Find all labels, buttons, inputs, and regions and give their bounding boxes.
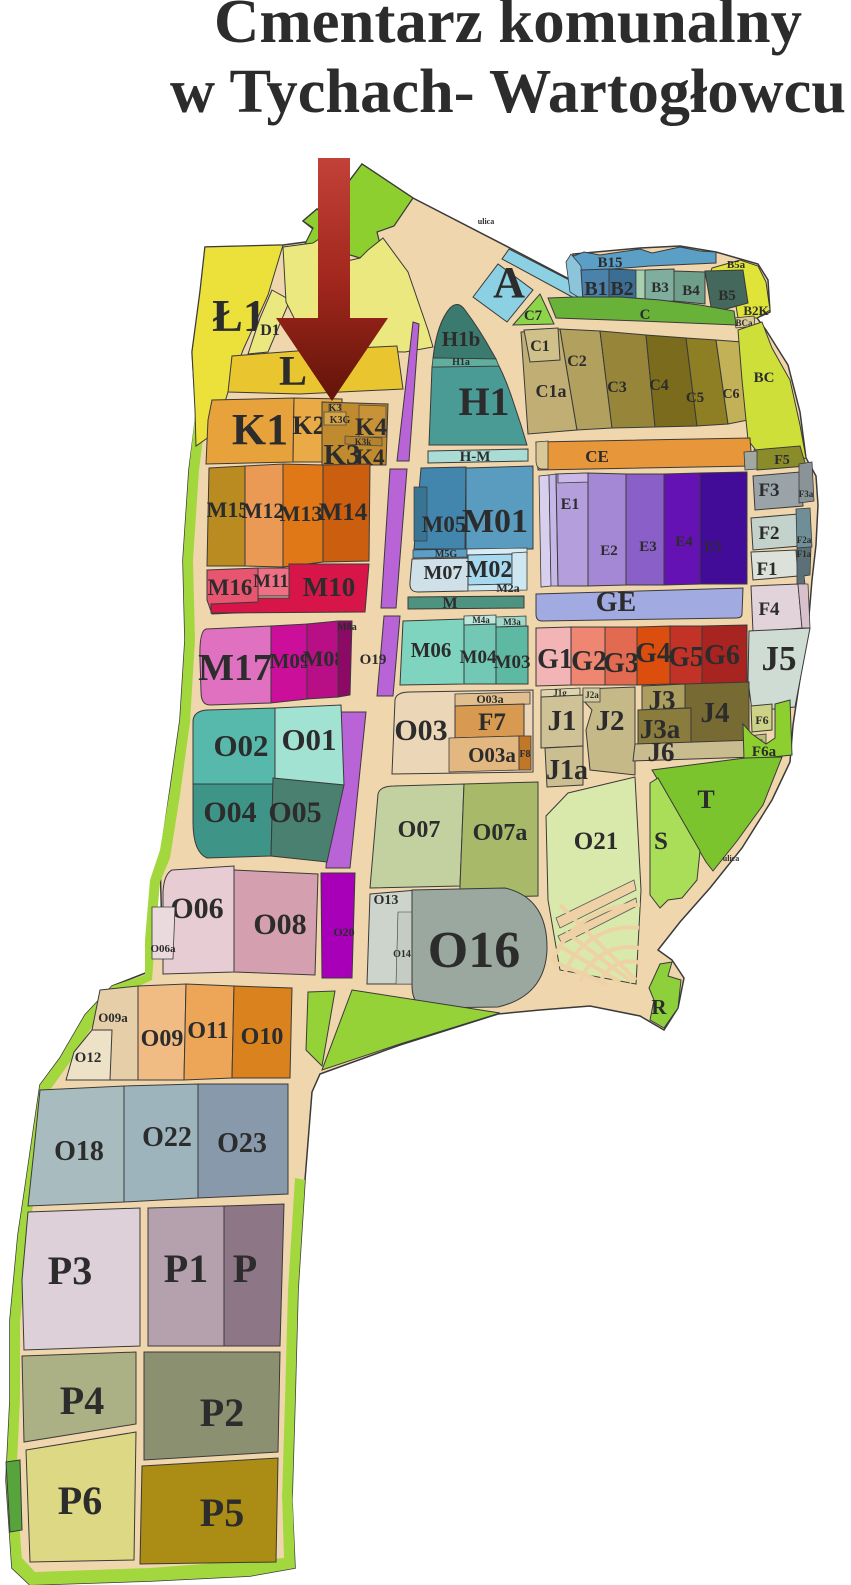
svg-text:O03a: O03a — [468, 743, 516, 767]
svg-text:E5: E5 — [704, 539, 722, 555]
svg-text:O09a: O09a — [98, 1010, 128, 1025]
svg-text:F1a: F1a — [797, 549, 812, 559]
svg-text:C2: C2 — [567, 353, 587, 370]
svg-text:C3: C3 — [607, 379, 627, 396]
svg-text:M2a: M2a — [496, 581, 519, 595]
svg-text:B5a: B5a — [727, 259, 746, 271]
svg-text:M06: M06 — [411, 638, 452, 662]
svg-text:J5: J5 — [762, 639, 797, 678]
svg-text:G6: G6 — [704, 640, 740, 671]
svg-text:M11: M11 — [253, 571, 289, 592]
svg-text:E4: E4 — [675, 534, 693, 550]
svg-text:P2: P2 — [200, 1390, 244, 1435]
svg-text:E1: E1 — [561, 496, 580, 513]
svg-text:ulica: ulica — [478, 217, 494, 226]
svg-text:B5: B5 — [718, 288, 736, 304]
svg-text:O16: O16 — [428, 922, 520, 979]
svg-text:J2: J2 — [596, 705, 625, 737]
svg-text:H1b: H1b — [442, 327, 481, 351]
svg-text:F1: F1 — [756, 559, 777, 580]
svg-text:C1a: C1a — [536, 381, 567, 401]
svg-text:R: R — [651, 995, 667, 1019]
svg-text:M13: M13 — [280, 501, 323, 526]
svg-text:O12: O12 — [75, 1050, 102, 1066]
svg-text:O19: O19 — [360, 652, 387, 668]
svg-text:O10: O10 — [241, 1024, 284, 1050]
svg-text:H1: H1 — [458, 379, 509, 424]
svg-text:w Tychach- Wartogłowcu: w Tychach- Wartogłowcu — [170, 58, 846, 126]
svg-text:C7: C7 — [524, 308, 543, 324]
svg-text:M14: M14 — [319, 499, 368, 526]
svg-text:K2: K2 — [292, 411, 325, 440]
svg-text:K3G: K3G — [330, 415, 351, 426]
svg-text:G4: G4 — [635, 638, 671, 669]
svg-text:C6: C6 — [722, 387, 739, 402]
svg-text:O06: O06 — [170, 892, 223, 925]
svg-text:E2: E2 — [600, 543, 618, 559]
svg-text:O09: O09 — [141, 1026, 184, 1052]
svg-text:O02: O02 — [213, 728, 268, 763]
svg-text:O23: O23 — [217, 1128, 267, 1159]
svg-text:C: C — [640, 307, 651, 323]
svg-text:M07: M07 — [424, 562, 463, 584]
svg-text:O13: O13 — [374, 893, 399, 908]
svg-text:M05: M05 — [422, 512, 467, 537]
svg-text:CE: CE — [585, 447, 609, 466]
svg-text:O01: O01 — [281, 722, 336, 757]
svg-text:P1: P1 — [164, 1246, 208, 1291]
svg-text:O20: O20 — [333, 925, 354, 939]
svg-text:G3: G3 — [603, 648, 639, 679]
svg-text:O22: O22 — [142, 1122, 192, 1153]
svg-text:F5: F5 — [774, 453, 790, 468]
svg-text:O06a: O06a — [150, 943, 176, 955]
svg-text:O03a: O03a — [476, 692, 503, 706]
svg-text:F2a: F2a — [797, 535, 812, 545]
svg-text:O07: O07 — [398, 817, 441, 843]
svg-text:J2a: J2a — [585, 690, 599, 700]
svg-text:BC: BC — [754, 370, 775, 386]
svg-text:K1: K1 — [232, 405, 288, 454]
svg-text:E3: E3 — [639, 539, 657, 555]
svg-text:O04: O04 — [203, 796, 256, 829]
svg-text:M02: M02 — [466, 557, 513, 583]
svg-text:O08: O08 — [253, 908, 306, 941]
svg-text:J1: J1 — [548, 705, 577, 737]
svg-text:M01: M01 — [462, 503, 528, 540]
svg-text:M10: M10 — [303, 572, 355, 602]
svg-text:T: T — [697, 785, 714, 814]
svg-text:P5: P5 — [200, 1490, 244, 1535]
svg-text:F2: F2 — [758, 523, 779, 544]
svg-text:O07a: O07a — [473, 820, 528, 846]
svg-text:O14: O14 — [393, 949, 411, 960]
svg-text:P: P — [233, 1246, 257, 1291]
svg-text:J4: J4 — [701, 697, 730, 729]
svg-text:C1: C1 — [530, 338, 550, 355]
svg-text:M4a: M4a — [472, 615, 490, 625]
svg-text:M04: M04 — [460, 647, 497, 668]
svg-text:P6: P6 — [58, 1478, 102, 1523]
svg-text:G1: G1 — [537, 644, 573, 675]
svg-text:ulica: ulica — [723, 854, 739, 863]
svg-text:O03: O03 — [394, 714, 447, 747]
svg-text:M03: M03 — [494, 652, 531, 673]
svg-text:O11: O11 — [187, 1018, 228, 1044]
svg-text:M: M — [442, 595, 457, 612]
svg-text:F3a: F3a — [799, 489, 814, 499]
svg-text:O21: O21 — [574, 828, 618, 855]
svg-text:H-M: H-M — [460, 449, 491, 465]
svg-text:O18: O18 — [54, 1136, 104, 1167]
svg-text:H1a: H1a — [452, 357, 470, 368]
svg-text:GE: GE — [596, 587, 636, 618]
svg-text:M17: M17 — [198, 647, 272, 689]
svg-text:P3: P3 — [48, 1248, 92, 1293]
svg-text:M16: M16 — [208, 575, 253, 600]
svg-text:B4: B4 — [682, 283, 700, 299]
svg-text:F7: F7 — [478, 709, 506, 736]
svg-text:F6: F6 — [755, 713, 768, 727]
svg-text:D1: D1 — [260, 322, 280, 339]
svg-text:Cmentarz komunalny: Cmentarz komunalny — [214, 0, 802, 56]
svg-text:F3: F3 — [758, 480, 779, 501]
svg-text:O05: O05 — [268, 796, 321, 829]
svg-text:G5: G5 — [668, 642, 704, 673]
svg-text:C5: C5 — [686, 390, 704, 406]
svg-text:S: S — [654, 828, 668, 855]
svg-text:M8a: M8a — [337, 622, 356, 633]
svg-text:M12: M12 — [242, 498, 285, 523]
svg-text:M3a: M3a — [503, 617, 521, 627]
svg-text:B3: B3 — [651, 280, 669, 296]
svg-text:J6: J6 — [648, 737, 675, 767]
svg-text:B2K: B2K — [743, 303, 769, 318]
svg-text:F8: F8 — [519, 749, 530, 760]
svg-text:J1a: J1a — [546, 755, 588, 786]
svg-text:G2: G2 — [571, 646, 607, 677]
svg-text:P4: P4 — [60, 1378, 104, 1423]
svg-text:C4: C4 — [649, 377, 669, 394]
svg-text:F4: F4 — [758, 599, 780, 620]
svg-text:K3: K3 — [329, 403, 342, 414]
